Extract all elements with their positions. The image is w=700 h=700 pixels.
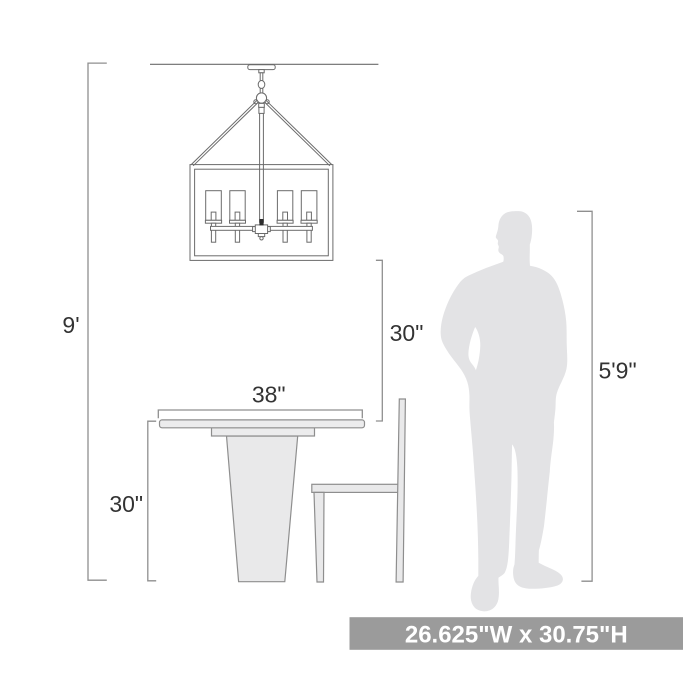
svg-text:30": 30" — [109, 491, 143, 517]
svg-text:30": 30" — [390, 320, 424, 346]
svg-text:26.625"W x 30.75"H: 26.625"W x 30.75"H — [405, 621, 628, 648]
svg-text:38": 38" — [252, 382, 286, 408]
svg-text:9': 9' — [62, 312, 79, 338]
svg-text:5'9": 5'9" — [599, 358, 637, 384]
